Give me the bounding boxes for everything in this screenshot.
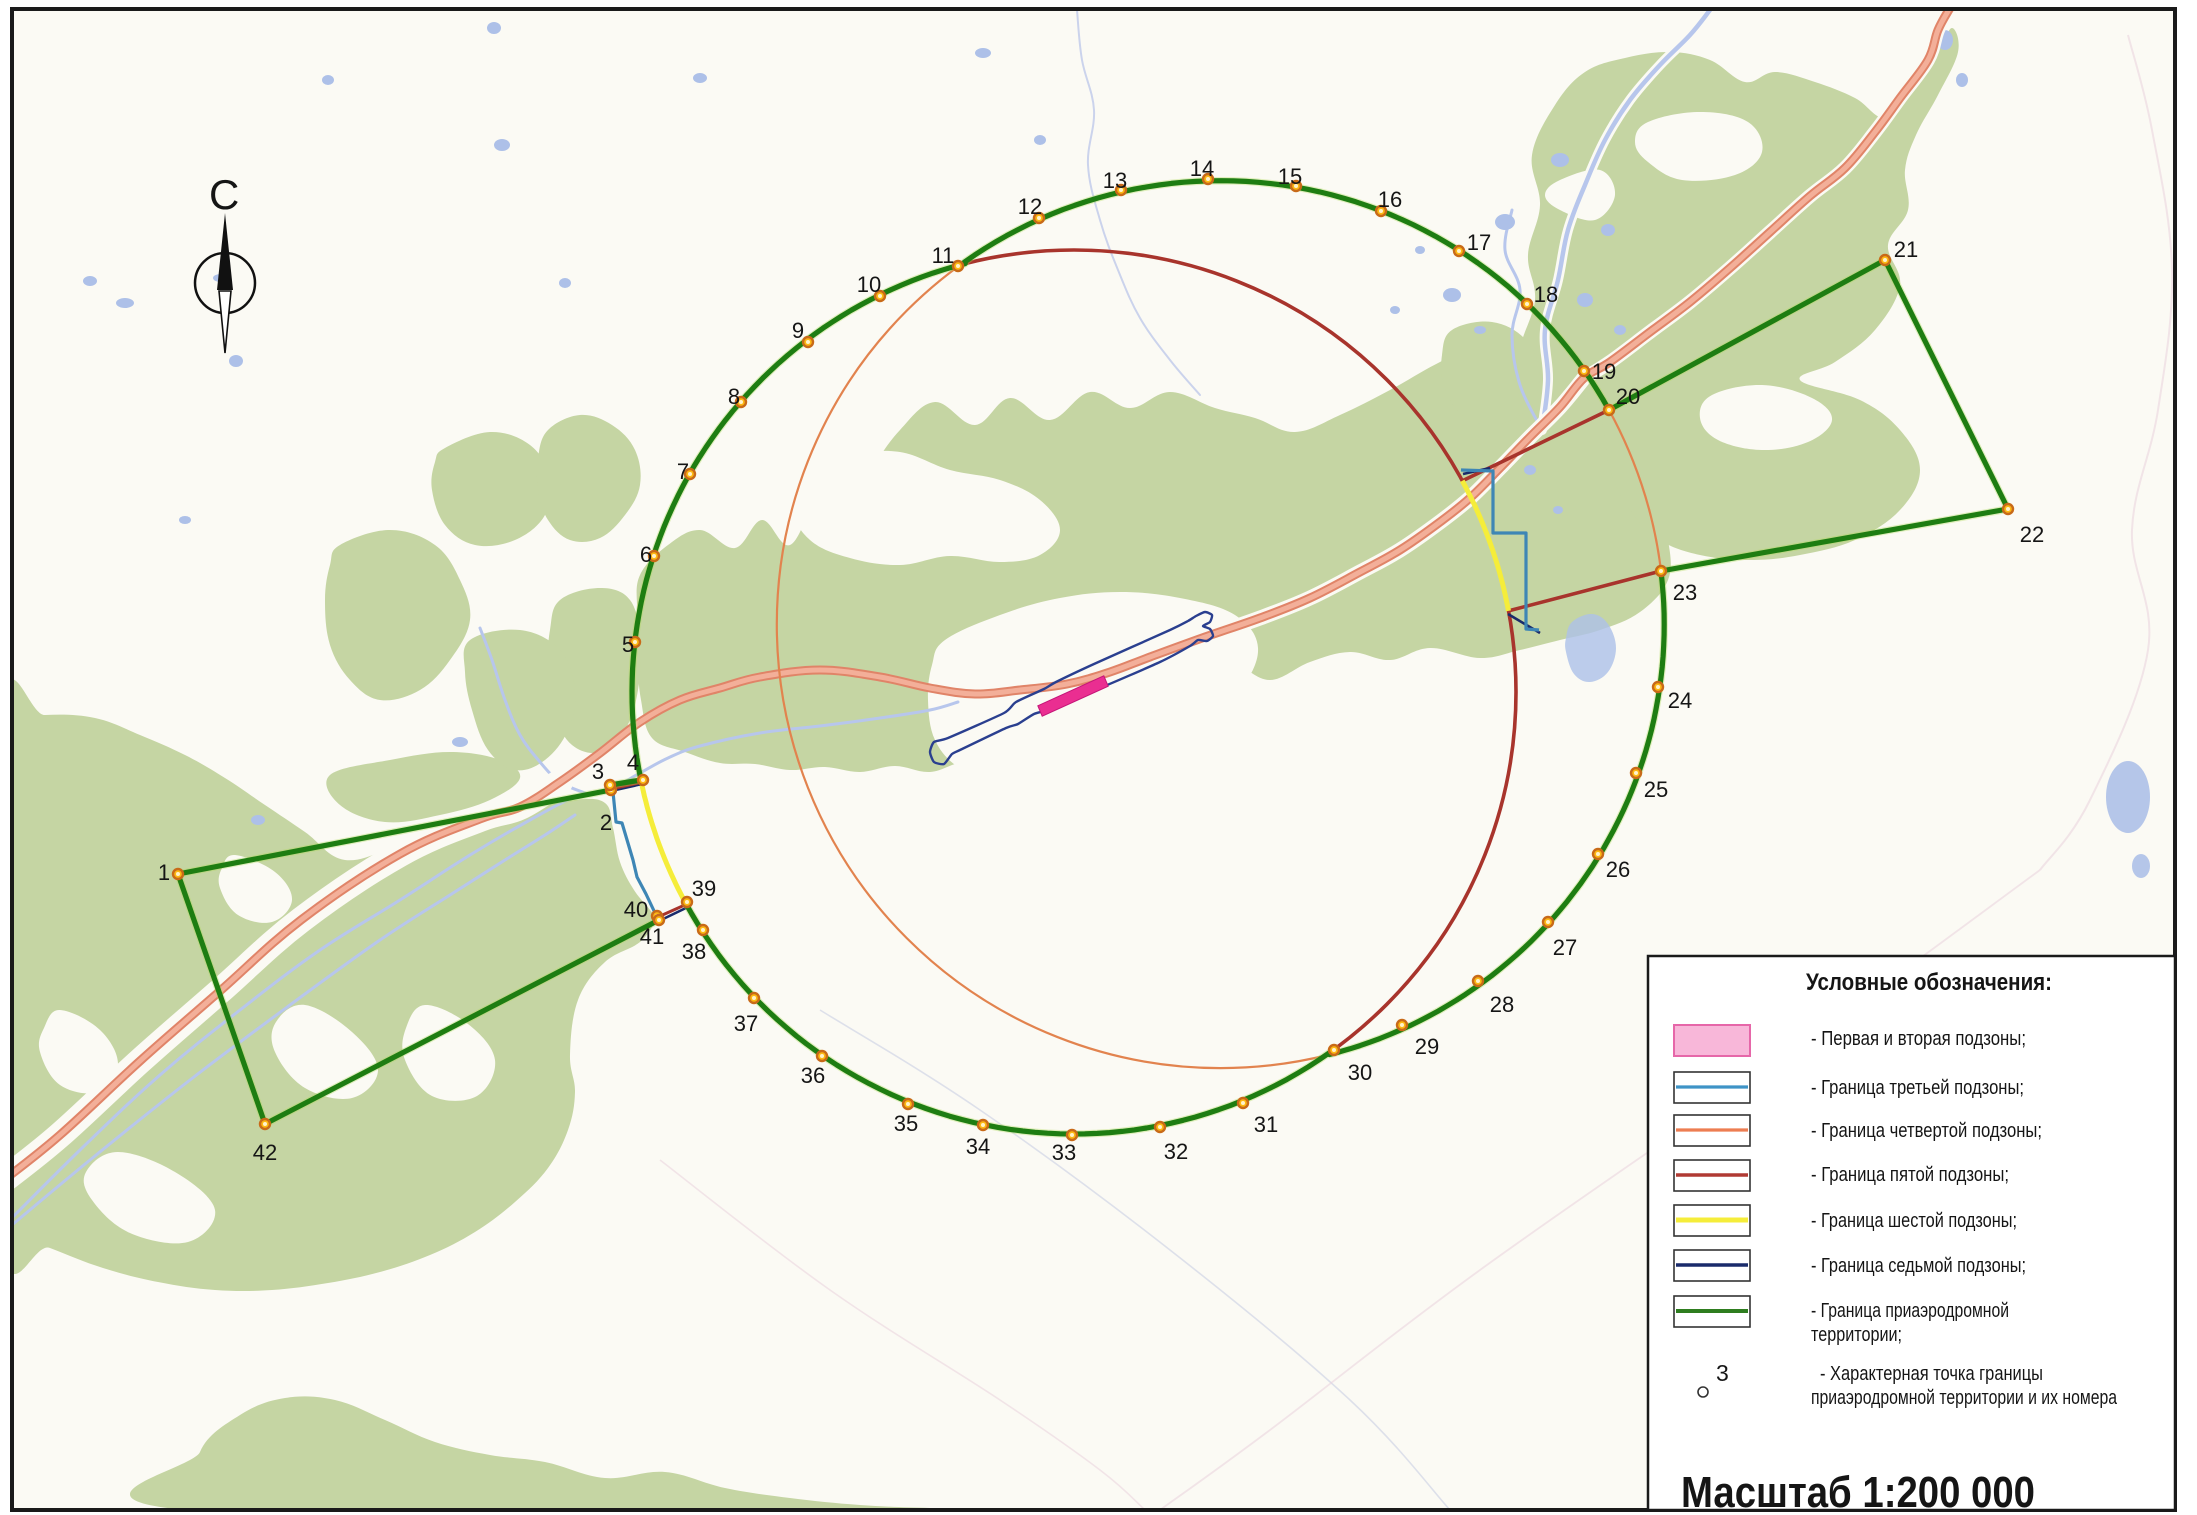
svg-text:41: 41 <box>640 924 664 949</box>
svg-text:22: 22 <box>2020 522 2044 547</box>
svg-text:40: 40 <box>624 897 648 922</box>
svg-text:35: 35 <box>894 1111 918 1136</box>
svg-text:- Характерная точка границы: - Характерная точка границы <box>1820 1363 2043 1385</box>
svg-text:Условные обозначения:: Условные обозначения: <box>1806 969 2052 996</box>
svg-text:17: 17 <box>1467 230 1491 255</box>
svg-text:30: 30 <box>1348 1060 1372 1085</box>
svg-text:23: 23 <box>1673 580 1697 605</box>
svg-text:8: 8 <box>728 384 740 409</box>
svg-text:34: 34 <box>966 1134 990 1159</box>
svg-text:36: 36 <box>801 1063 825 1088</box>
svg-text:3: 3 <box>592 759 604 784</box>
svg-text:3: 3 <box>1716 1360 1729 1386</box>
svg-text:C: C <box>209 171 239 218</box>
svg-text:территории;: территории; <box>1811 1324 1902 1346</box>
svg-text:14: 14 <box>1190 156 1214 181</box>
svg-text:38: 38 <box>682 939 706 964</box>
svg-text:9: 9 <box>792 318 804 343</box>
svg-text:32: 32 <box>1164 1139 1188 1164</box>
svg-text:16: 16 <box>1378 187 1402 212</box>
svg-text:5: 5 <box>622 632 634 657</box>
svg-text:- Граница четвертой подзоны;: - Граница четвертой подзоны; <box>1811 1120 2042 1142</box>
svg-text:19: 19 <box>1592 359 1616 384</box>
svg-text:6: 6 <box>640 542 652 567</box>
svg-text:33: 33 <box>1052 1140 1076 1165</box>
svg-text:21: 21 <box>1894 237 1918 262</box>
svg-text:4: 4 <box>627 750 639 775</box>
svg-text:12: 12 <box>1018 194 1042 219</box>
svg-text:- Граница седьмой подзоны;: - Граница седьмой подзоны; <box>1811 1255 2026 1277</box>
svg-text:2: 2 <box>600 810 612 835</box>
svg-text:15: 15 <box>1278 164 1302 189</box>
svg-text:25: 25 <box>1644 777 1668 802</box>
svg-text:31: 31 <box>1254 1112 1278 1137</box>
svg-text:20: 20 <box>1616 384 1640 409</box>
svg-text:1: 1 <box>158 860 170 885</box>
svg-text:приаэродромной территории и их: приаэродромной территории и их номера <box>1811 1387 2118 1409</box>
svg-text:- Граница приаэродромной: - Граница приаэродромной <box>1811 1300 2009 1322</box>
svg-text:42: 42 <box>253 1140 277 1165</box>
svg-text:Масштаб 1:200 000: Масштаб 1:200 000 <box>1681 1468 2035 1515</box>
svg-text:29: 29 <box>1415 1034 1439 1059</box>
svg-text:- Граница шестой подзоны;: - Граница шестой подзоны; <box>1811 1210 2017 1232</box>
svg-text:13: 13 <box>1103 168 1127 193</box>
svg-text:18: 18 <box>1534 282 1558 307</box>
svg-text:24: 24 <box>1668 688 1692 713</box>
svg-text:- Первая и вторая подзоны;: - Первая и вторая подзоны; <box>1811 1028 2026 1050</box>
svg-text:28: 28 <box>1490 992 1514 1017</box>
svg-text:7: 7 <box>677 459 689 484</box>
svg-text:37: 37 <box>734 1011 758 1036</box>
svg-text:- Граница третьей подзоны;: - Граница третьей подзоны; <box>1811 1077 2024 1099</box>
svg-text:27: 27 <box>1553 935 1577 960</box>
svg-text:- Граница пятой подзоны;: - Граница пятой подзоны; <box>1811 1164 2009 1186</box>
svg-text:10: 10 <box>857 272 881 297</box>
svg-text:11: 11 <box>932 243 955 268</box>
svg-text:39: 39 <box>692 876 716 901</box>
svg-text:26: 26 <box>1606 857 1630 882</box>
